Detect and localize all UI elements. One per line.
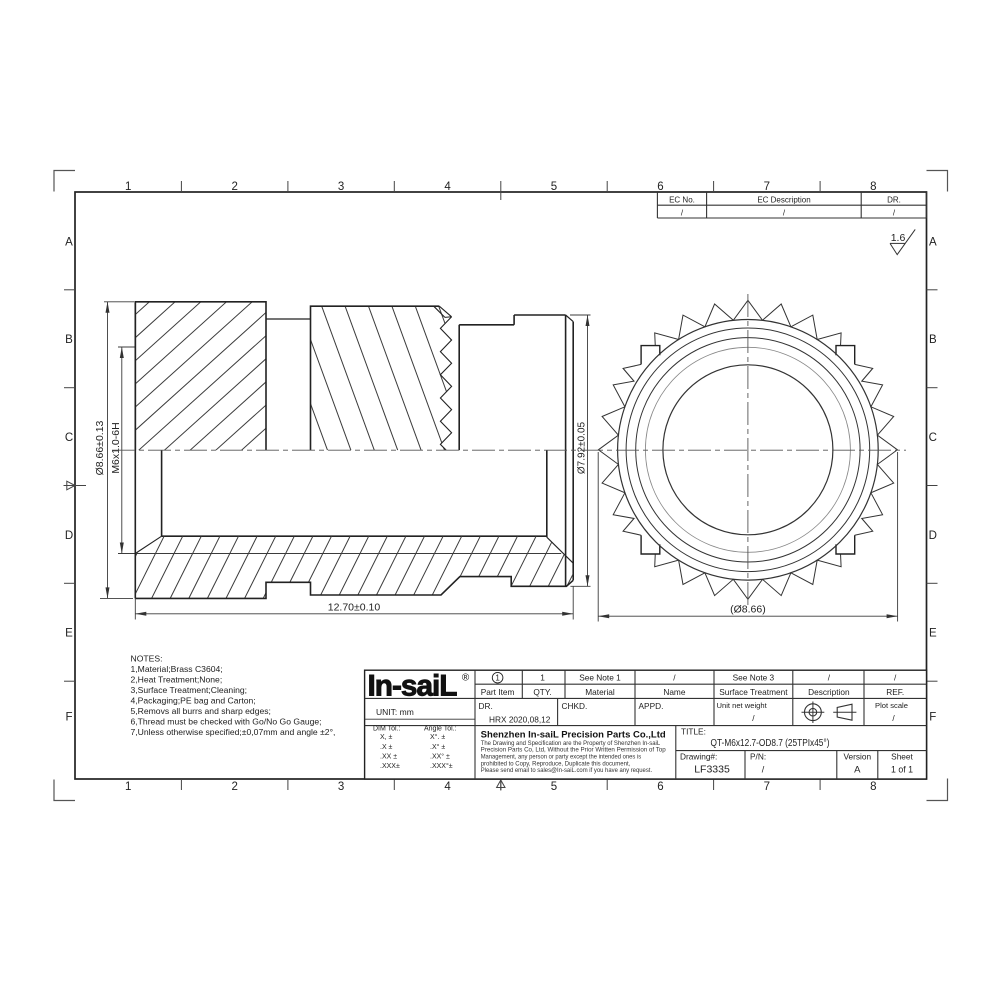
svg-text:.XXX°±: .XXX°± [430, 762, 453, 770]
svg-text:Version: Version [843, 752, 871, 762]
svg-text:.XX° ±: .XX° ± [430, 752, 450, 760]
svg-text:Name: Name [663, 687, 686, 697]
svg-text:B: B [929, 334, 937, 346]
svg-text:NOTES:: NOTES: [131, 654, 163, 664]
svg-text:3,Surface Treatment;Cleaning;: 3,Surface Treatment;Cleaning; [131, 685, 248, 695]
svg-text:DR.: DR. [479, 701, 493, 711]
svg-text:6: 6 [657, 781, 663, 793]
svg-text:4,Packaging;PE bag and Carton;: 4,Packaging;PE bag and Carton; [131, 696, 256, 706]
svg-text:X°. ±: X°. ± [430, 733, 445, 741]
svg-text:7,Unless otherwise specified;±: 7,Unless otherwise specified;±0,07mm and… [131, 727, 336, 737]
svg-text:1,Material;Brass C3604;: 1,Material;Brass C3604; [131, 664, 223, 674]
svg-text:Shenzhen In-saiL Precision Par: Shenzhen In-saiL Precision Parts Co.,Ltd [481, 730, 666, 740]
svg-text:DIM Tol.:: DIM Tol.: [373, 726, 401, 733]
svg-text:APPD.: APPD. [639, 701, 664, 711]
svg-text:5: 5 [551, 181, 557, 193]
svg-text:.XXX±: .XXX± [380, 763, 400, 770]
svg-text:1: 1 [125, 781, 131, 793]
svg-text:.XX ±: .XX ± [380, 753, 397, 760]
svg-text:Unit net weight: Unit net weight [717, 701, 768, 710]
svg-text:Please send email to sales@In-: Please send email to sales@In-saiL.com i… [481, 767, 653, 774]
svg-text:Description: Description [808, 687, 850, 697]
svg-text:See Note 1: See Note 1 [579, 673, 621, 683]
svg-text:6,Thread must be checked with: 6,Thread must be checked with Go/No Go G… [131, 717, 322, 727]
svg-text:Plot scale: Plot scale [875, 701, 908, 710]
svg-text:D: D [929, 530, 937, 542]
svg-text:QT-M6x12.7-OD8.7 (25TPIx45°): QT-M6x12.7-OD8.7 (25TPIx45°) [711, 738, 830, 749]
svg-text:1: 1 [495, 674, 500, 683]
svg-text:2: 2 [231, 781, 237, 793]
svg-text:F: F [65, 712, 72, 724]
svg-text:TITLE:: TITLE: [681, 727, 706, 737]
svg-text:Material: Material [585, 687, 615, 697]
svg-text:M6x1.0-6H: M6x1.0-6H [110, 422, 122, 473]
svg-text:F: F [929, 712, 936, 724]
svg-text:QTY.: QTY. [533, 687, 551, 697]
svg-text:Surface Treatment: Surface Treatment [719, 687, 788, 697]
svg-text:REF.: REF. [886, 687, 904, 697]
svg-text:B: B [65, 334, 73, 346]
svg-text:1.6: 1.6 [891, 232, 906, 244]
svg-text:EC No.: EC No. [669, 195, 695, 204]
svg-text:Sheet: Sheet [891, 752, 913, 762]
svg-text:D: D [65, 530, 73, 542]
svg-text:In-saiL: In-saiL [368, 670, 458, 703]
svg-text:EC Description: EC Description [757, 195, 810, 204]
svg-text:UNIT: mm: UNIT: mm [376, 707, 414, 717]
svg-text:E: E [929, 628, 937, 640]
svg-text:LF3335: LF3335 [694, 764, 730, 776]
svg-text:X, ±: X, ± [380, 734, 393, 741]
svg-text:C: C [65, 432, 73, 444]
svg-text:Angle Tol.:: Angle Tol.: [424, 726, 457, 733]
svg-text:3: 3 [338, 181, 344, 193]
svg-text:12.70±0.10: 12.70±0.10 [328, 602, 381, 614]
svg-text:5: 5 [551, 781, 557, 793]
svg-text:.X° ±: .X° ± [430, 743, 445, 751]
svg-text:P/N:: P/N: [750, 752, 766, 762]
svg-text:Part Item: Part Item [481, 687, 515, 697]
svg-text:1: 1 [540, 673, 545, 683]
svg-text:4: 4 [444, 181, 451, 193]
svg-text:2: 2 [231, 181, 237, 193]
svg-text:See Note 3: See Note 3 [733, 673, 775, 683]
svg-text:1: 1 [125, 181, 131, 193]
svg-text:A: A [929, 237, 937, 249]
svg-text:DR.: DR. [887, 195, 901, 204]
svg-text:5,Removs all burrs and sharp e: 5,Removs all burrs and sharp edges; [131, 706, 271, 716]
svg-text:A: A [854, 765, 861, 776]
svg-text:4: 4 [444, 781, 451, 793]
svg-text:A: A [65, 237, 73, 249]
svg-text:7: 7 [764, 181, 770, 193]
svg-text:CHKD.: CHKD. [562, 701, 588, 711]
svg-text:Ø8.66±0.13: Ø8.66±0.13 [94, 420, 106, 475]
svg-text:Drawing#:: Drawing#: [680, 752, 717, 762]
svg-text:7: 7 [764, 781, 770, 793]
svg-text:3: 3 [338, 781, 344, 793]
svg-text:E: E [65, 628, 73, 640]
svg-text:8: 8 [870, 781, 876, 793]
svg-text:C: C [929, 432, 937, 444]
svg-text:6: 6 [657, 181, 663, 193]
svg-text:1 of 1: 1 of 1 [891, 765, 913, 775]
svg-text:8: 8 [870, 181, 876, 193]
svg-text:®: ® [462, 673, 470, 684]
svg-text:.X ±: .X ± [380, 744, 393, 751]
svg-text:HRX 2020,08,12: HRX 2020,08,12 [489, 715, 551, 725]
svg-text:(Ø8.66): (Ø8.66) [730, 604, 766, 616]
svg-text:Ø7.92±0.05: Ø7.92±0.05 [576, 421, 587, 474]
svg-text:2,Heat Treatment;None;: 2,Heat Treatment;None; [131, 675, 223, 685]
